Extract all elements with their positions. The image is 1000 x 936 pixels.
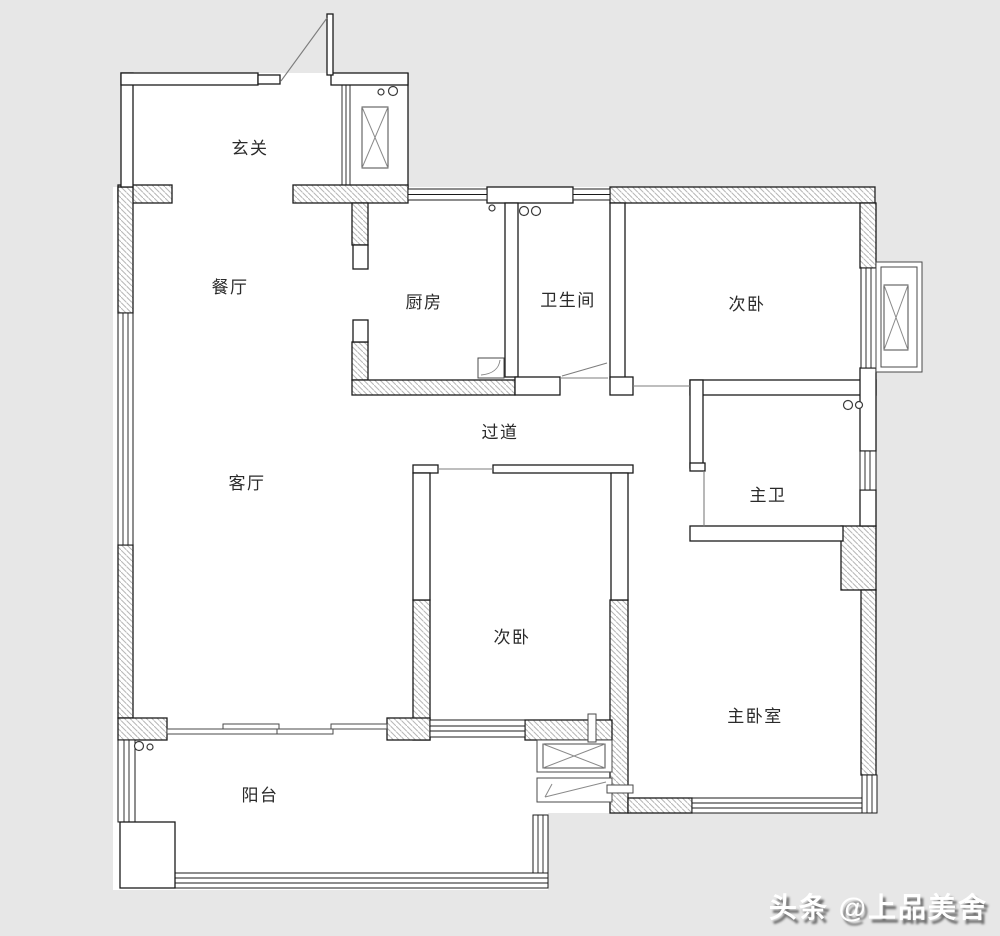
window-bedroom-middle-south (430, 720, 525, 737)
wall-bedroom-middle-east-upper (611, 473, 628, 600)
wall-bedroom-middle-east (610, 600, 628, 813)
floor-plan-page: 玄关 餐厅 厨房 卫生间 次卧 过道 客厅 主卫 次卧 主卧室 阳台 头条 @上… (0, 0, 1000, 936)
window-top-kitchen (408, 189, 487, 200)
window-left-living (118, 313, 133, 545)
window-top-bath (573, 189, 610, 200)
room-label-hallway: 过道 (482, 423, 519, 442)
wall-bedroom-top-north (610, 187, 875, 203)
window-balcony-right (533, 815, 548, 873)
balcony-column (120, 822, 175, 888)
wall-masterbath-south (690, 526, 843, 541)
wall-right-upper (860, 203, 876, 268)
wall-under-shaft (293, 185, 408, 203)
wall-kitchen-bath-partition (505, 203, 518, 377)
wall-masterbath-north (690, 380, 876, 395)
window-balcony-left (118, 740, 135, 822)
room-label-bathroom: 卫生间 (540, 291, 596, 310)
wall-master-south-left (628, 798, 692, 813)
wall-left-lower (118, 545, 133, 718)
wall-right-seg-a (860, 368, 876, 451)
wall-bedroom-middle-west-upper (413, 473, 430, 600)
room-label-kitchen: 厨房 (406, 293, 443, 312)
wall-bedroom-middle-north-left-lip (413, 465, 438, 473)
wall-left-upper (118, 187, 133, 313)
wall-kitchen-west-upper (352, 203, 368, 245)
room-label-bedroom-top: 次卧 (729, 295, 766, 314)
wall-masterbath-west-foot (690, 463, 705, 471)
lintel-kitchen-bath (487, 187, 573, 203)
wall-right-lower (861, 590, 876, 775)
window-bedroom-top-east (861, 268, 876, 368)
room-label-entrance: 玄关 (232, 139, 269, 158)
wall-tick-vertical (588, 714, 596, 742)
flue-shaft-service (537, 740, 612, 772)
wall-bath-partition-foot (610, 377, 633, 395)
wall-entrance-left (121, 73, 133, 187)
floor-balcony (113, 733, 548, 890)
wall-left-corner-block (118, 718, 167, 740)
room-label-living: 客厅 (229, 474, 266, 493)
room-label-dining: 餐厅 (212, 278, 249, 297)
wall-living-south-block (387, 718, 430, 740)
room-label-master-bedroom: 主卧室 (727, 707, 783, 726)
entry-door-jamb (258, 75, 280, 84)
room-label-balcony: 阳台 (242, 786, 279, 805)
window-balcony-bottom (175, 873, 548, 888)
kitchen-west-door-frame-b (353, 320, 368, 342)
kitchen-door-box (478, 358, 504, 378)
service-box-south (537, 778, 612, 802)
wall-bath-bedroom-partition (610, 203, 625, 379)
wall-right-seg-b (860, 490, 876, 526)
wall-kitchen-west-lower (352, 342, 368, 380)
wall-tick-horizontal (607, 785, 633, 793)
room-label-master-bath: 主卫 (750, 486, 787, 505)
bay-window-east (876, 262, 922, 372)
floor-plan-svg: 玄关 餐厅 厨房 卫生间 次卧 过道 客厅 主卫 次卧 主卧室 阳台 (0, 0, 1000, 936)
wall-bedroom-middle-north-right (493, 465, 633, 473)
wall-shaft-top (331, 73, 408, 85)
room-label-bedroom-middle: 次卧 (494, 628, 531, 647)
wall-right-mid-block (841, 526, 876, 590)
wall-masterbath-west (690, 380, 703, 468)
flue-shaft-entrance (362, 107, 388, 168)
kitchen-west-door-frame-a (353, 245, 368, 269)
wall-bedroom-middle-south (525, 720, 612, 740)
watermark: 头条 @上品美舍 (769, 886, 988, 926)
wall-bath-south (515, 377, 560, 395)
wall-kitchen-south (352, 380, 515, 395)
wall-entrance-top (121, 73, 258, 85)
window-masterbath-east (860, 451, 876, 490)
